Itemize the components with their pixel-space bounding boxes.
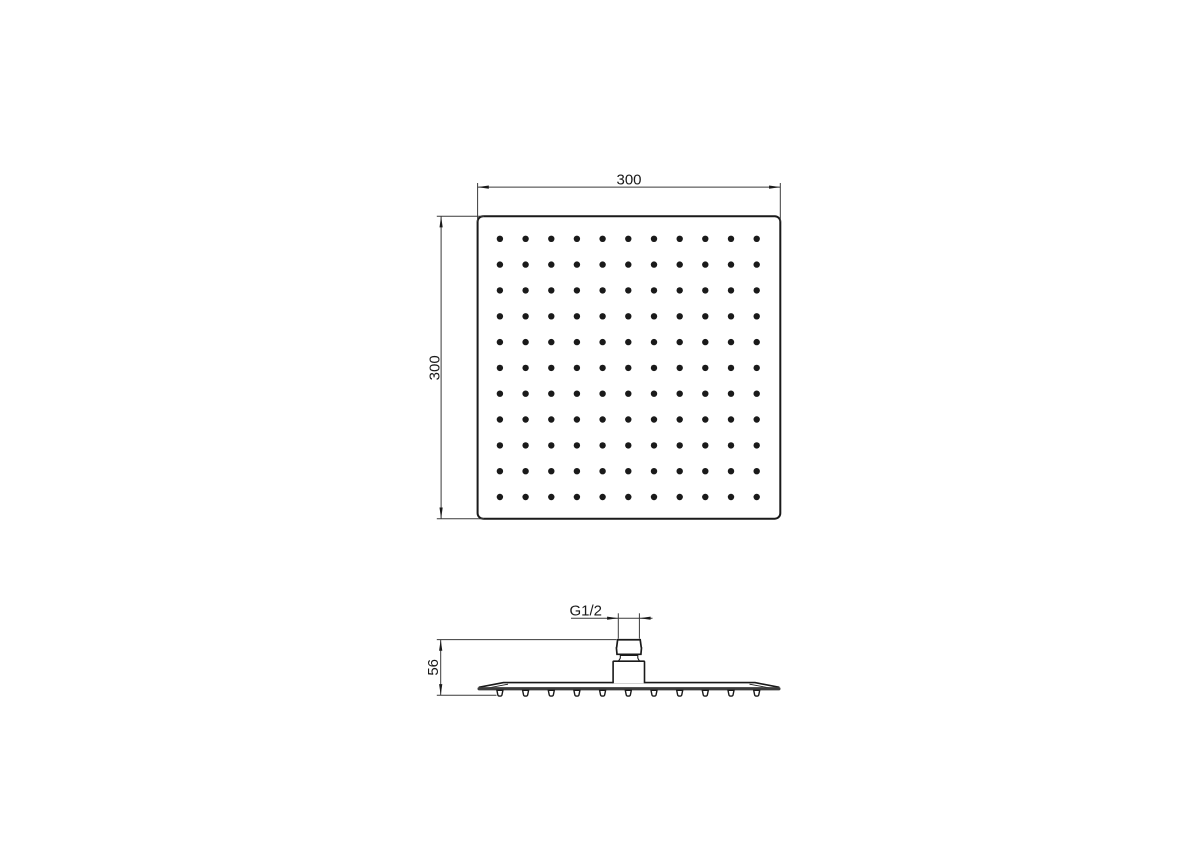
svg-text:G1/2: G1/2 (570, 603, 603, 620)
svg-text:300: 300 (426, 355, 443, 380)
svg-text:300: 300 (616, 172, 641, 189)
svg-text:56: 56 (425, 659, 442, 676)
